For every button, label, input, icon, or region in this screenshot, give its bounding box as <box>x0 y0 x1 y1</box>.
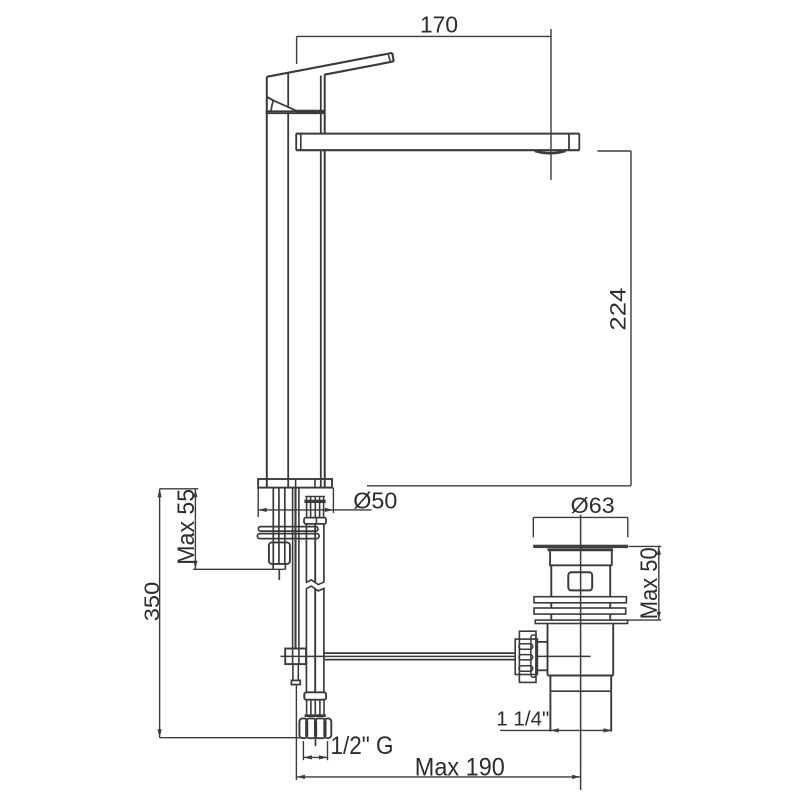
svg-text:Max 190: Max 190 <box>415 754 505 782</box>
svg-text:1 1/4": 1 1/4" <box>496 708 549 731</box>
svg-text:170: 170 <box>420 12 458 38</box>
svg-text:Max 50: Max 50 <box>636 547 663 619</box>
svg-text:Ø50: Ø50 <box>353 487 397 513</box>
svg-text:224: 224 <box>605 288 630 331</box>
svg-text:Ø63: Ø63 <box>571 493 615 518</box>
svg-text:1/2" G: 1/2" G <box>331 732 394 760</box>
svg-text:Max 55: Max 55 <box>173 489 200 565</box>
svg-text:350: 350 <box>140 582 164 622</box>
